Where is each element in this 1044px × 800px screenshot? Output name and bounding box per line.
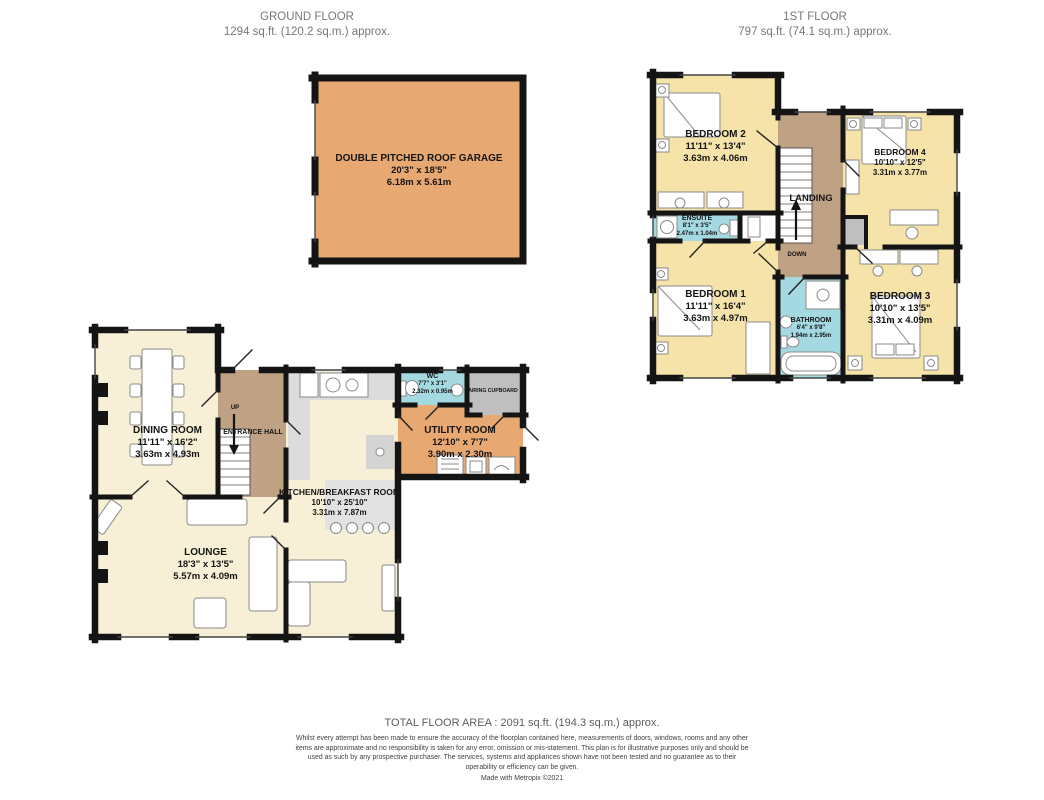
bedroom2-name: BEDROOM 2 bbox=[653, 128, 778, 141]
garage-metric: 6.18m x 5.61m bbox=[309, 177, 529, 189]
room-label-garage: DOUBLE PITCHED ROOF GARAGE 20'3" x 18'5"… bbox=[309, 152, 529, 190]
lounge-metric: 5.57m x 4.09m bbox=[143, 571, 268, 583]
room-label-entrance-hall: ENTRANCE HALL bbox=[212, 428, 294, 437]
room-label-ensuite: ENSUITE 8'1" x 3'5" 2.47m x 1.04m bbox=[653, 214, 741, 239]
kitchen-imperial: 10'10" x 25'10" bbox=[272, 498, 407, 508]
bedroom1-name: BEDROOM 1 bbox=[653, 288, 778, 301]
ensuite-metric: 2.47m x 1.04m bbox=[653, 231, 741, 239]
disclaimer-text: Whilst every attempt has been made to en… bbox=[296, 735, 749, 771]
bedroom1-metric: 3.63m x 4.97m bbox=[653, 313, 778, 325]
lounge-imperial: 18'3" x 13'5" bbox=[143, 559, 268, 571]
ensuite-name: ENSUITE bbox=[653, 214, 741, 223]
room-label-bedroom3: BEDROOM 3 10'10" x 13'5" 3.31m x 4.09m bbox=[843, 290, 957, 328]
bedroom3-name: BEDROOM 3 bbox=[843, 290, 957, 303]
ensuite-imperial: 8'1" x 3'5" bbox=[653, 223, 741, 231]
stairs-down-label: DOWN bbox=[779, 252, 815, 258]
stairs-up-label: UP bbox=[224, 405, 246, 411]
disclaimer: Whilst every attempt has been made to en… bbox=[292, 734, 752, 783]
floorplan-page: GROUND FLOOR 1294 sq.ft. (120.2 sq.m.) a… bbox=[0, 0, 1044, 800]
utility-name: UTILITY ROOM bbox=[397, 424, 523, 437]
room-label-utility: UTILITY ROOM 12'10" x 7'7" 3.90m x 2.30m bbox=[397, 424, 523, 462]
utility-metric: 3.90m x 2.30m bbox=[397, 449, 523, 461]
bedroom4-metric: 3.31m x 3.77m bbox=[843, 168, 957, 178]
garage-name: DOUBLE PITCHED ROOF GARAGE bbox=[309, 152, 529, 165]
bedroom4-name: BEDROOM 4 bbox=[843, 147, 957, 158]
bedroom2-metric: 3.63m x 4.06m bbox=[653, 153, 778, 165]
wc-metric: 2.32m x 0.95m bbox=[398, 389, 467, 397]
metropix-credit: Made with Metropix ©2021 bbox=[292, 774, 752, 784]
dining-metric: 3.63m x 4.93m bbox=[105, 449, 230, 461]
bedroom3-metric: 3.31m x 4.09m bbox=[843, 315, 957, 327]
floorplan-drawing bbox=[0, 0, 1044, 800]
room-label-bedroom4: BEDROOM 4 10'10" x 12'5" 3.31m x 3.77m bbox=[843, 147, 957, 179]
bathroom-name: BATHROOM bbox=[779, 316, 843, 325]
bedroom1-imperial: 11'11" x 16'4" bbox=[653, 301, 778, 313]
kitchen-metric: 3.31m x 7.87m bbox=[272, 508, 407, 518]
bathroom-metric: 1.94m x 2.95m bbox=[779, 333, 843, 341]
room-label-bedroom1: BEDROOM 1 11'11" x 16'4" 3.63m x 4.97m bbox=[653, 288, 778, 326]
airing-cupboard-name: AIRING CUPBOARD bbox=[461, 388, 525, 395]
bathroom-imperial: 6'4" x 9'8" bbox=[779, 325, 843, 333]
dining-imperial: 11'11" x 16'2" bbox=[105, 437, 230, 449]
total-floor-area: TOTAL FLOOR AREA : 2091 sq.ft. (194.3 sq… bbox=[0, 717, 1044, 729]
utility-imperial: 12'10" x 7'7" bbox=[397, 437, 523, 449]
garage-imperial: 20'3" x 18'5" bbox=[309, 165, 529, 177]
landing-label: LANDING bbox=[774, 193, 848, 204]
room-label-bathroom: BATHROOM 6'4" x 9'8" 1.94m x 2.95m bbox=[779, 316, 843, 341]
lounge-name: LOUNGE bbox=[143, 546, 268, 559]
room-label-lounge: LOUNGE 18'3" x 13'5" 5.57m x 4.09m bbox=[143, 546, 268, 584]
bedroom4-imperial: 10'10" x 12'5" bbox=[843, 158, 957, 168]
room-label-wc: WC 7'7" x 3'1" 2.32m x 0.95m bbox=[398, 372, 467, 397]
room-label-bedroom2: BEDROOM 2 11'11" x 13'4" 3.63m x 4.06m bbox=[653, 128, 778, 166]
wc-name: WC bbox=[398, 372, 467, 381]
bedroom3-imperial: 10'10" x 13'5" bbox=[843, 303, 957, 315]
entrance-hall-name: ENTRANCE HALL bbox=[212, 428, 294, 437]
wc-imperial: 7'7" x 3'1" bbox=[398, 381, 467, 389]
room-label-airing-cupboard: AIRING CUPBOARD bbox=[461, 388, 525, 395]
kitchen-name: KITCHEN/BREAKFAST ROOM bbox=[272, 487, 407, 498]
room-label-kitchen: KITCHEN/BREAKFAST ROOM 10'10" x 25'10" 3… bbox=[272, 487, 407, 519]
bedroom2-imperial: 11'11" x 13'4" bbox=[653, 141, 778, 153]
